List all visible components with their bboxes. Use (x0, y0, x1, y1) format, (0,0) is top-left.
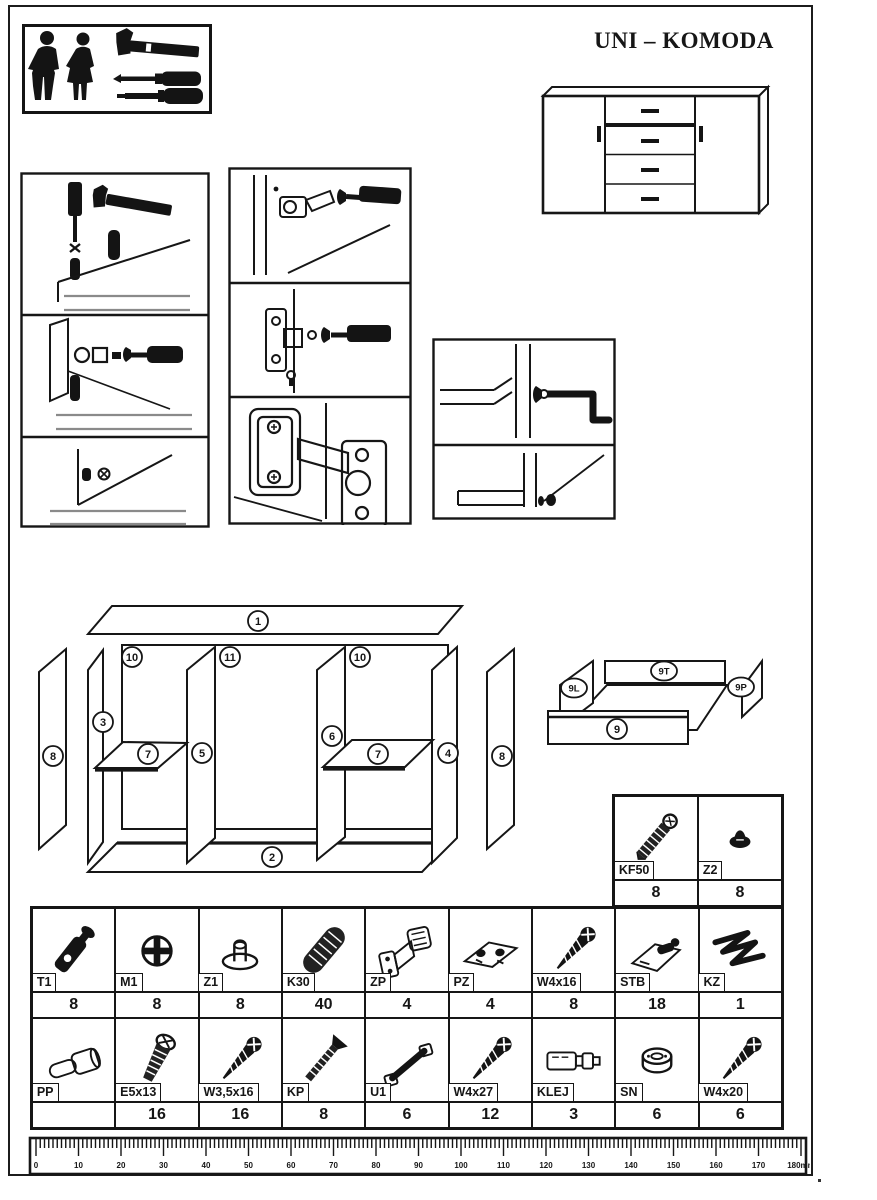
screw-icon (202, 1030, 278, 1090)
glue-tube-icon (536, 1030, 612, 1090)
part-number: 9T (658, 667, 669, 678)
part-qty-W4x27: 12 (449, 1102, 532, 1128)
part-cell-W4x27: W4x27 (449, 1018, 532, 1102)
part-cell-W4x20: W4x20 (699, 1018, 782, 1102)
ruler-label: 160 (709, 1161, 723, 1170)
ruler-label: 110 (497, 1161, 510, 1170)
cam-bolt-icon (36, 920, 112, 980)
part-code: K30 (282, 973, 315, 992)
ruler-label: 40 (202, 1161, 211, 1170)
barrel-pin-icon (36, 1030, 112, 1090)
part-qty-M1: 8 (115, 992, 198, 1018)
euro-screw-icon (119, 1030, 195, 1090)
part-number: 6 (329, 731, 335, 743)
step-hinge-assembled (234, 403, 386, 525)
hardware-subtable: KF50Z288 (612, 794, 784, 908)
part-cell-PZ: PZ (449, 908, 532, 992)
ruler-label: 10 (74, 1161, 83, 1170)
shelf-support-icon (619, 920, 695, 980)
ruler-label: 120 (539, 1161, 553, 1170)
part-cell-W4x16: W4x16 (532, 908, 615, 992)
hinge-icon (369, 920, 445, 980)
part-code: PZ (448, 973, 474, 992)
part-code: T1 (32, 973, 57, 992)
ruler-label: 140 (624, 1161, 638, 1170)
part-qty-T1: 8 (32, 992, 115, 1018)
part-qty-W3,5x16: 16 (199, 1102, 282, 1128)
part-cell-Z2: Z2 (698, 796, 782, 880)
ruler-label: 170 (752, 1161, 766, 1170)
drawer-handle (641, 109, 659, 113)
ruler-label: 60 (287, 1161, 296, 1170)
part-qty-PP (32, 1102, 115, 1128)
round-nut-icon (619, 1030, 695, 1090)
part-qty-W4x16: 8 (532, 992, 615, 1018)
part-code: Z2 (698, 861, 723, 880)
part-code: W4x16 (532, 973, 582, 992)
drawer-handle (641, 168, 659, 172)
part-code: U1 (365, 1083, 391, 1102)
part-cell-ZP: ZP (365, 908, 448, 992)
allen-crank-icon (577, 394, 609, 420)
ruler-label: 100 (454, 1161, 468, 1170)
part-cell-PP: PP (32, 1018, 115, 1102)
ruler-label: 80 (372, 1161, 381, 1170)
top-panel (88, 606, 462, 634)
ruler-label: 130 (582, 1161, 596, 1170)
cover-cap-icon (702, 808, 778, 868)
hammer-icon (114, 27, 200, 62)
part-code: STB (615, 973, 650, 992)
wooden-dowel-icon (286, 920, 362, 980)
product-overview-drawing (528, 80, 774, 222)
step-hinge-cup (254, 175, 402, 275)
ruler-scale: 0102030405060708090100110120130140150160… (28, 1136, 810, 1176)
flat-screwdriver-icon (117, 88, 203, 104)
part-code: M1 (115, 973, 142, 992)
ruler-label: 70 (329, 1161, 338, 1170)
part-qty-SN: 6 (615, 1102, 698, 1128)
part-code: PP (32, 1083, 59, 1102)
screw-icon (536, 920, 612, 980)
drawer-handle (641, 197, 659, 201)
assembly-steps-dowels-panel (20, 172, 210, 528)
part-code: Z1 (198, 973, 223, 992)
part-cell-KLEJ: KLEJ (532, 1018, 615, 1102)
step-confirmat-crank (440, 344, 609, 438)
part-qty-U1: 6 (365, 1102, 448, 1128)
required-tools-box (22, 24, 212, 114)
part-number: 8 (499, 751, 505, 763)
part-qty-KLEJ: 3 (532, 1102, 615, 1128)
part-cell-KP: KP (282, 1018, 365, 1102)
part-qty-Z1: 8 (199, 992, 282, 1018)
part-code: W3,5x16 (198, 1083, 258, 1102)
handle-icon (369, 1030, 445, 1090)
screw-icon (702, 1030, 778, 1090)
part-qty-W4x20: 6 (699, 1102, 782, 1128)
part-number: 9 (614, 724, 620, 736)
door-handle (699, 126, 703, 142)
glide-icon (202, 920, 278, 980)
part-number: 7 (375, 749, 381, 761)
allen-key-icon (702, 920, 778, 980)
door-handle (597, 126, 601, 142)
part-number: 9L (568, 684, 579, 695)
page-title: UNI – KOMODA (586, 28, 782, 54)
part-number: 1 (255, 616, 261, 628)
ruler-label: 30 (159, 1161, 168, 1170)
part-qty-Z2: 8 (698, 880, 782, 906)
step-cam-bolt (50, 319, 192, 429)
part-qty-KF50: 8 (614, 880, 698, 906)
assembly-steps-hinge-panel (228, 167, 412, 525)
part-code: KF50 (614, 861, 655, 880)
part-code: SN (615, 1083, 642, 1102)
ruler-label: 180mm (787, 1161, 810, 1170)
ruler-label: 90 (414, 1161, 423, 1170)
part-cell-U1: U1 (365, 1018, 448, 1102)
part-cell-KF50: KF50 (614, 796, 698, 880)
part-qty-K30: 40 (282, 992, 365, 1018)
part-qty-KP: 8 (282, 1102, 365, 1128)
part-number: 9P (735, 683, 747, 694)
part-cell-E5x13: E5x13 (115, 1018, 198, 1102)
man-silhouette-icon (28, 31, 59, 100)
tools-illustration (25, 27, 203, 105)
part-qty-KZ: 1 (699, 992, 782, 1018)
part-cell-STB: STB (615, 908, 698, 992)
step-nail (458, 453, 604, 507)
part-number: 8 (50, 751, 56, 763)
part-number: 10 (126, 652, 138, 664)
flat-bolt-icon (286, 1030, 362, 1090)
part-cell-W3,5x16: W3,5x16 (199, 1018, 282, 1102)
part-cell-T1: T1 (32, 908, 115, 992)
woman-silhouette-icon (66, 33, 94, 101)
ruler-label: 0 (34, 1161, 39, 1170)
left-side-panel (88, 650, 103, 863)
hinge-plate-icon (452, 920, 528, 980)
part-number: 11 (224, 652, 236, 664)
part-number: 2 (269, 852, 275, 864)
step-hinge-mount (266, 289, 391, 393)
part-qty-ZP: 4 (365, 992, 448, 1018)
cam-lock-icon (119, 920, 195, 980)
part-cell-M1: M1 (115, 908, 198, 992)
part-code: KP (282, 1083, 309, 1102)
part-code: ZP (365, 973, 391, 992)
part-qty-STB: 18 (615, 992, 698, 1018)
part-code: W4x20 (698, 1083, 748, 1102)
step-connect (50, 449, 186, 524)
part-code: E5x13 (115, 1083, 161, 1102)
part-qty-PZ: 4 (449, 992, 532, 1018)
ruler-label: 20 (117, 1161, 126, 1170)
phillips-screwdriver-icon (113, 72, 201, 87)
part-number: 3 (100, 717, 106, 729)
hardware-table: T1M1Z1K30ZPPZW4x16STBKZ88840448181PPE5x1… (30, 906, 784, 1130)
ruler-label: 150 (667, 1161, 681, 1170)
screw-icon (452, 1030, 528, 1090)
part-code: KLEJ (532, 1083, 574, 1102)
part-code: W4x27 (448, 1083, 498, 1102)
part-number: 4 (445, 748, 452, 760)
part-code: KZ (698, 973, 725, 992)
instruction-sheet: UNI – KOMODA (0, 0, 877, 1200)
part-cell-KZ: KZ (699, 908, 782, 992)
part-qty-E5x13: 16 (115, 1102, 198, 1128)
part-number: 7 (145, 749, 151, 761)
part-number: 10 (354, 652, 366, 664)
assembly-steps-confirmat-panel (432, 338, 616, 520)
part-cell-SN: SN (615, 1018, 698, 1102)
carcass-back (122, 645, 448, 829)
confirmat-screw-icon (618, 808, 694, 868)
part-number: 5 (199, 748, 205, 760)
part-cell-K30: K30 (282, 908, 365, 992)
step-hammer-dowel (58, 182, 190, 310)
ruler-label: 50 (244, 1161, 253, 1170)
part-cell-Z1: Z1 (199, 908, 282, 992)
drawer-handle (641, 139, 659, 143)
print-speck (818, 1179, 821, 1182)
